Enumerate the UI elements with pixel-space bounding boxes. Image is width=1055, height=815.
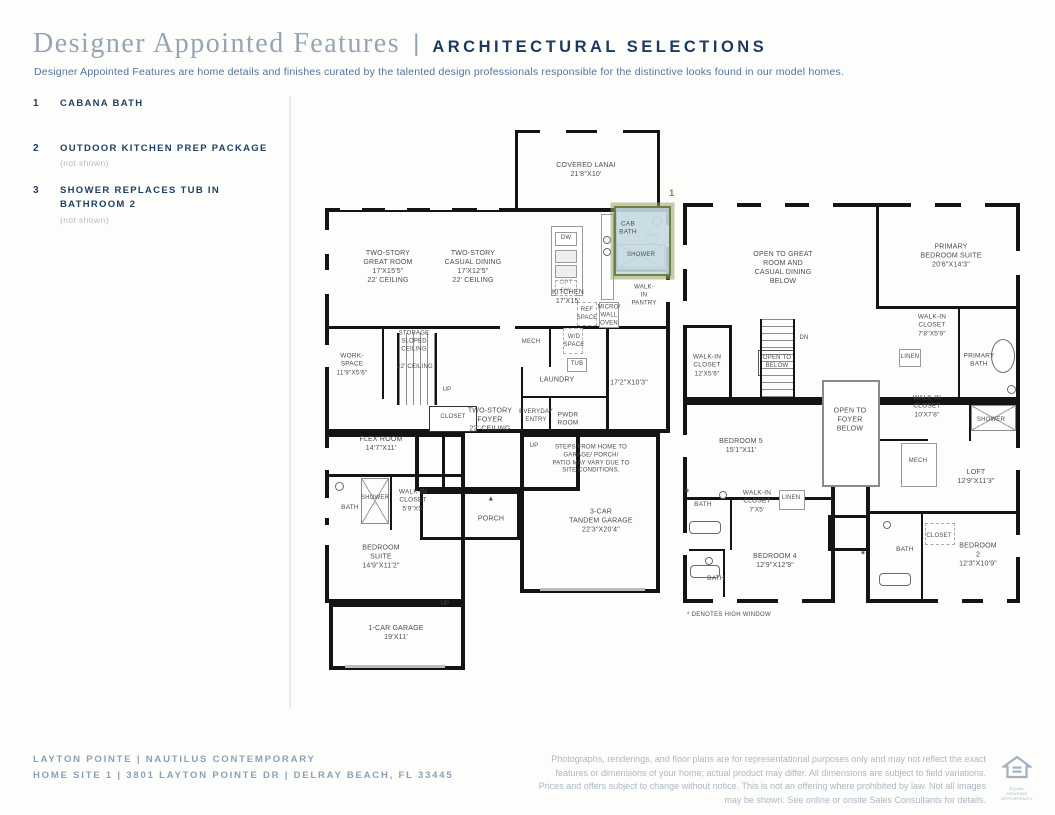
label-1car-garage: 1-CAR GARAGE 19'X11' bbox=[368, 624, 423, 642]
oven-box-1 bbox=[555, 250, 577, 263]
label-up-2: UP bbox=[530, 443, 539, 451]
label-tub: TUB bbox=[571, 361, 584, 369]
bath-sink bbox=[719, 491, 727, 499]
label-cab-bath: CAB BATH bbox=[619, 221, 637, 238]
page: Designer Appointed Features | ARCHITECTU… bbox=[0, 0, 1055, 815]
label-primary-suite: PRIMARY BEDROOM SUITE 20'6"X14'3" bbox=[920, 242, 981, 269]
label-closet-1: CLOSET bbox=[440, 414, 465, 422]
feature-note: (not shown) bbox=[60, 215, 283, 225]
window-opening bbox=[1014, 535, 1020, 557]
window-opening bbox=[1014, 251, 1020, 275]
label-bedroom-5: BEDROOM 5 15'1"X11' bbox=[719, 437, 763, 455]
label-flex-room: FLEX ROOM 14'7"X11' bbox=[359, 435, 402, 453]
wall-bath2b-top bbox=[683, 549, 723, 551]
label-shower-1: SHOWER bbox=[361, 495, 389, 503]
label-wic-59: WALK-IN CLOSET 5'9"X5' bbox=[399, 488, 427, 513]
window-opening bbox=[430, 204, 452, 210]
header: Designer Appointed Features | ARCHITECTU… bbox=[33, 28, 1023, 78]
wall-primary-left bbox=[876, 203, 879, 309]
label-dn: ← DN bbox=[791, 335, 808, 343]
window-opening bbox=[983, 597, 1007, 603]
wall-wic12-top bbox=[683, 325, 729, 328]
label-cab-shower: SHOWER bbox=[627, 252, 655, 260]
feature-1-marker: 1 bbox=[669, 188, 674, 199]
label-3car-garage: 3-CAR TANDEM GARAGE 22'3"X20'4" bbox=[569, 507, 633, 534]
label-primary-bath: PRIMARY BATH bbox=[964, 353, 995, 370]
window-opening bbox=[809, 203, 833, 209]
wall-bed2-row-top bbox=[866, 511, 1020, 514]
label-bedroom-suite: BEDROOM SUITE 14'9"X11'2" bbox=[362, 543, 400, 570]
window-opening bbox=[683, 301, 689, 325]
window-opening bbox=[325, 498, 331, 518]
label-open-to-foyer: OPEN TO FOYER BELOW bbox=[834, 406, 867, 433]
wall-connector bbox=[828, 515, 870, 551]
window-opening bbox=[664, 280, 670, 302]
window-opening bbox=[683, 435, 689, 457]
label-22-ceiling: 22' CEILING bbox=[397, 364, 433, 372]
window-opening bbox=[1014, 448, 1020, 470]
legal-disclaimer: Photographs, renderings, and floor plans… bbox=[528, 753, 986, 807]
feature-label: SHOWER REPLACES TUB IN BATHROOM 2 bbox=[60, 184, 283, 212]
wall-pwdr-top bbox=[521, 396, 608, 398]
feature-item-3: 3 SHOWER REPLACES TUB IN BATHROOM 2 (not… bbox=[33, 184, 283, 225]
cooktop-burner bbox=[603, 248, 611, 256]
primary-sink bbox=[1007, 385, 1016, 394]
floor-plan-second-floor: OPEN TO GREAT ROOM AND CASUAL DINING BEL… bbox=[683, 203, 1020, 620]
floor-plan-first-floor: 1 COVERED LANAI 21'8"X10'TWO-STORY GREAT… bbox=[325, 130, 670, 672]
label-bath-2c: BATH bbox=[896, 546, 914, 554]
window-opening bbox=[761, 203, 785, 209]
wall-primary-bottom bbox=[876, 306, 1020, 309]
window-opening bbox=[911, 203, 935, 209]
label-wd-space: W/D SPACE bbox=[564, 334, 585, 350]
window-opening bbox=[683, 533, 689, 555]
wall-porch bbox=[420, 491, 520, 540]
window-opening bbox=[713, 597, 737, 603]
window-opening bbox=[961, 203, 985, 209]
oven-box-2 bbox=[555, 265, 577, 278]
label-steps-note: STEPS FROM HOME TO GARAGE/ PORCH/ PATIO … bbox=[552, 444, 631, 475]
label-porch: PORCH bbox=[478, 514, 504, 523]
label-casual-dining: TWO-STORY CASUAL DINING 17'X12'5" 22' CE… bbox=[445, 249, 502, 285]
feature-number: 2 bbox=[33, 142, 60, 169]
equal-housing-caption: EQUAL HOUSING OPPORTUNITY bbox=[999, 787, 1035, 801]
window-opening bbox=[325, 448, 331, 470]
label-mech-1: MECH bbox=[522, 339, 540, 347]
label-shower-2: SHOWER bbox=[977, 417, 1005, 425]
label-bedroom-2: BEDROOM 2 12'3"X10'9" bbox=[957, 541, 999, 568]
label-covered-lanai: COVERED LANAI 21'8"X10' bbox=[556, 161, 615, 179]
title-separator: | bbox=[413, 30, 419, 58]
page-title-caps: ARCHITECTURAL SELECTIONS bbox=[432, 38, 767, 57]
label-star-1: * bbox=[685, 487, 689, 500]
garage-door-1car bbox=[345, 665, 445, 668]
label-dim-17-2: 17'2"X10'3" bbox=[610, 378, 648, 387]
window-opening bbox=[385, 204, 407, 210]
high-window-note: * DENOTES HIGH WINDOW bbox=[687, 612, 771, 618]
feature-number: 1 bbox=[33, 97, 60, 112]
cabana-bath-highlight bbox=[614, 206, 671, 276]
garage-door-3car bbox=[540, 588, 645, 591]
label-pwdr-room: PWDR ROOM bbox=[557, 412, 578, 429]
equal-housing-house-icon bbox=[1002, 756, 1032, 781]
label-wic-12: WALK-IN CLOSET 12'X5'6" bbox=[693, 353, 721, 378]
wall-upper-block bbox=[683, 203, 1020, 401]
wall-workspace-right bbox=[382, 329, 384, 399]
label-closet-2: CLOSET bbox=[926, 533, 951, 541]
wall-workspace-top bbox=[325, 326, 500, 329]
window-opening bbox=[778, 597, 802, 603]
label-linen-2: LINEN bbox=[782, 495, 801, 503]
label-walk-in-pantry: WALK-IN PANTRY bbox=[631, 284, 657, 307]
header-description: Designer Appointed Features are home det… bbox=[34, 66, 1023, 78]
label-loft: LOFT 12'9"X11'3" bbox=[957, 468, 994, 486]
wall-laundry-right bbox=[606, 326, 609, 433]
label-front-door: ▲ bbox=[487, 494, 494, 503]
window-opening bbox=[325, 270, 331, 294]
equal-housing-logo: EQUAL HOUSING OPPORTUNITY bbox=[999, 756, 1035, 801]
label-kitchen: KITCHEN 17'X15' bbox=[552, 288, 584, 306]
label-mech-2: MECH bbox=[909, 458, 927, 466]
bath-sink bbox=[883, 521, 891, 529]
label-up-1: UP bbox=[443, 387, 452, 395]
window-opening bbox=[340, 204, 362, 210]
feature-item-2: 2 OUTDOOR KITCHEN PREP PACKAGE (not show… bbox=[33, 142, 283, 169]
window-opening bbox=[325, 525, 331, 545]
wall-wic12-right bbox=[729, 325, 732, 401]
label-wic-10: WALK-IN CLOSET 10'X7'8" bbox=[913, 394, 941, 419]
label-bath-1: BATH bbox=[341, 504, 359, 512]
kitchen-counter bbox=[601, 214, 614, 300]
label-open-to-below: OPEN TO BELOW bbox=[763, 355, 791, 371]
window-opening bbox=[477, 204, 499, 210]
label-storage-sloped-ceiling: STORAGE SLOPED CEILING bbox=[399, 330, 430, 353]
bath-sink bbox=[335, 482, 344, 491]
label-everyday-entry: EVERYDAY ENTRY bbox=[519, 409, 553, 425]
bath-tub bbox=[879, 573, 911, 586]
label-up-3: UP bbox=[441, 601, 450, 609]
label-wic-7x5: WALK-IN CLOSET 7'X5' bbox=[743, 489, 771, 514]
label-two-story-foyer: TWO-STORY FOYER 22' CEILING bbox=[468, 406, 512, 433]
wall-flex-right bbox=[442, 433, 445, 491]
window-opening bbox=[540, 130, 566, 135]
primary-tub bbox=[991, 339, 1015, 373]
window-opening bbox=[325, 345, 331, 367]
features-legend: 1 CABANA BATH 2 OUTDOOR KITCHEN PREP PAC… bbox=[33, 97, 283, 255]
home-site-address: HOME SITE 1 | 3801 LAYTON POINTE DR | DE… bbox=[33, 770, 453, 781]
cooktop-burner bbox=[603, 236, 611, 244]
community-name: LAYTON POINTE | NAUTILUS CONTEMPORARY bbox=[33, 754, 453, 765]
label-great-room: TWO-STORY GREAT ROOM 17'X15'5" 22' CEILI… bbox=[363, 249, 412, 285]
label-bath-2a: BATH bbox=[694, 501, 712, 509]
wall-mech-sep bbox=[549, 329, 551, 367]
bath-tub bbox=[689, 521, 721, 534]
label-work-space: WORK- SPACE 11'9"X5'6" bbox=[336, 352, 367, 377]
window-opening bbox=[938, 597, 962, 603]
feature-number: 3 bbox=[33, 184, 60, 225]
label-star-2: * bbox=[861, 549, 865, 562]
wall-primary-bath-left bbox=[958, 309, 960, 401]
wall-bath-closet-sep bbox=[730, 500, 732, 550]
footer-community-info: LAYTON POINTE | NAUTILUS CONTEMPORARY HO… bbox=[33, 754, 453, 786]
wall-bath2c-right bbox=[921, 514, 923, 603]
wall-kitchen-laundry bbox=[515, 326, 670, 329]
label-dw: DW bbox=[561, 235, 571, 243]
window-opening bbox=[597, 130, 623, 135]
label-bedroom-4: BEDROOM 4 12'9"X12'9" bbox=[753, 552, 797, 570]
legend-divider bbox=[289, 96, 291, 708]
label-micro-wall-oven: MICRO/ WALL OVEN bbox=[598, 304, 621, 327]
bath-sink bbox=[705, 557, 713, 565]
feature-label: OUTDOOR KITCHEN PREP PACKAGE bbox=[60, 142, 283, 156]
window-opening bbox=[325, 230, 331, 254]
page-title-row: Designer Appointed Features | ARCHITECTU… bbox=[33, 28, 1023, 60]
window-opening bbox=[683, 245, 689, 269]
label-ref-space: REF SPACE bbox=[577, 307, 598, 323]
label-laundry: LAUNDRY bbox=[540, 375, 575, 384]
feature-note: (not shown) bbox=[60, 158, 283, 168]
feature-label: CABANA BATH bbox=[60, 97, 283, 111]
label-wic-78: WALK-IN CLOSET 7'8"X5'9" bbox=[918, 313, 946, 338]
wall-closet-left bbox=[390, 477, 392, 530]
label-bath-2b: BATH bbox=[707, 575, 725, 583]
page-title: Designer Appointed Features bbox=[33, 28, 400, 60]
window-opening bbox=[713, 203, 737, 209]
label-linen-1: LINEN bbox=[901, 354, 920, 362]
feature-item-1: 1 CABANA BATH bbox=[33, 97, 283, 112]
wall-bath-row-top bbox=[325, 474, 465, 477]
label-open-to-great: OPEN TO GREAT ROOM AND CASUAL DINING BEL… bbox=[753, 250, 812, 286]
